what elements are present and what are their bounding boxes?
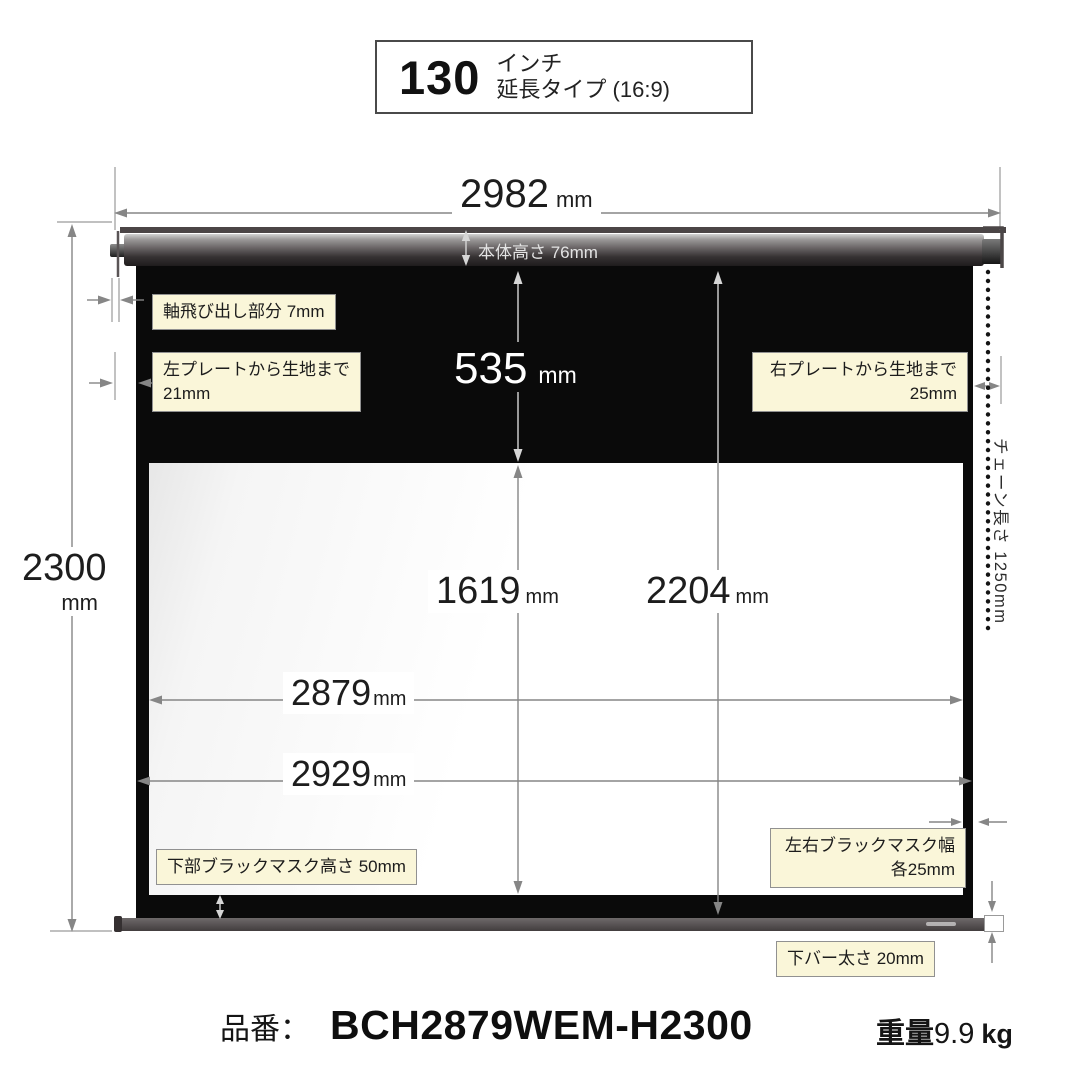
mounting-bracket — [120, 227, 1006, 233]
size-type-label: 延長タイプ (16:9) — [496, 77, 670, 103]
dim-total-width-text: 2982 mm — [452, 172, 601, 217]
dim-total-height-text: 2300 mm — [22, 547, 104, 616]
weight-value: 9.9 — [934, 1018, 974, 1051]
callout-right-plate: 右プレートから生地まで 25mm — [752, 352, 968, 412]
part-number-value: BCH2879WEM-H2300 — [330, 1002, 753, 1049]
brand-logo-mark — [926, 922, 956, 926]
chain-length-label: チェーン長さ 1250mm — [990, 438, 1014, 648]
spec-diagram: 130 インチ 延長タイプ (16:9) — [0, 0, 1080, 1080]
callout-axle-protrusion: 軸飛び出し部分 7mm — [152, 294, 336, 330]
bottom-weight-bar — [118, 918, 1004, 931]
callout-left-plate: 左プレートから生地まで 21mm — [152, 352, 361, 412]
dim-fabric-height-text: 2204 mm — [638, 570, 777, 613]
part-number-row: 品番： BCH2879WEM-H2300 — [220, 1002, 753, 1049]
part-number-label: 品番： — [220, 1004, 310, 1048]
right-end-cap — [982, 239, 1002, 264]
size-number: 130 — [399, 50, 480, 105]
weight-label: 重量 — [876, 1010, 934, 1052]
bottom-bar-right-cap — [984, 915, 1004, 932]
size-header-box: 130 インチ 延長タイプ (16:9) — [375, 40, 753, 114]
dim-top-black-text: 535 mm — [446, 344, 585, 394]
bottom-bar-left-tip — [114, 916, 122, 932]
weight-row: 重量 9.9 kg — [876, 1010, 1013, 1052]
callout-bottom-bar: 下バー太さ 20mm — [776, 941, 935, 977]
dim-fabric-width-text: 2929 mm — [283, 753, 414, 795]
size-unit-label: インチ — [496, 51, 670, 77]
dim-view-height-text: 1619 mm — [428, 570, 567, 613]
weight-unit: kg — [981, 1019, 1013, 1050]
size-type: インチ 延長タイプ (16:9) — [496, 51, 670, 104]
dim-right-plate — [974, 356, 1001, 404]
body-height-label: 本体高さ 76mm — [478, 238, 598, 263]
dim-view-width-text: 2879 mm — [283, 672, 414, 714]
callout-bottom-mask: 下部ブラックマスク高さ 50mm — [156, 849, 417, 885]
callout-side-mask: 左右ブラックマスク幅 各25mm — [770, 828, 966, 888]
